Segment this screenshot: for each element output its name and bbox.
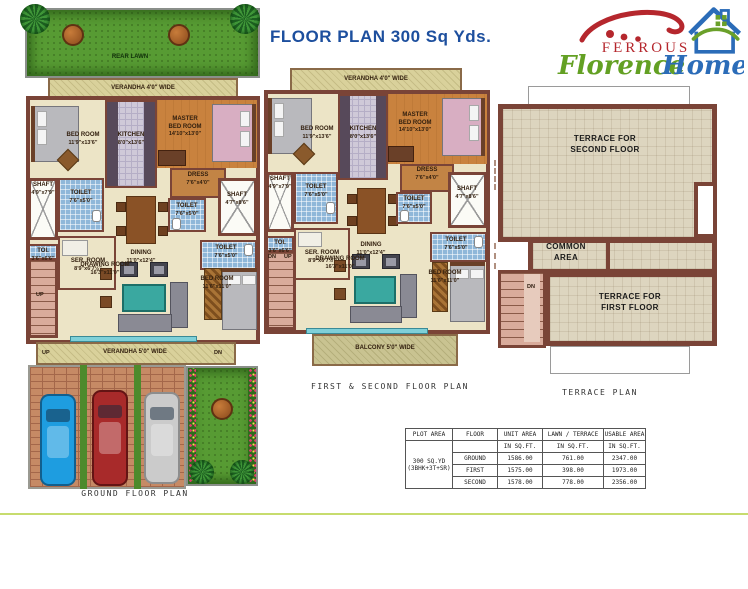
room-label-toilet-right-bottom: TOILET 7'6"x5'0": [200, 245, 252, 259]
unit-label: IN SQ.FT.: [543, 441, 604, 453]
side-table-icon: [334, 288, 346, 300]
room-label-shaft-left: SHAFT 4'9"x7'9": [263, 176, 297, 190]
terrace-dn-label: DN: [527, 284, 535, 290]
grass-strip: [80, 365, 87, 489]
room-label-master-bed-room: MASTER BED ROOM 14'10"x13'0": [162, 116, 208, 138]
car-silver-icon: [144, 392, 180, 484]
room-label-terrace-second: TERRACE FOR SECOND FLOOR: [540, 134, 670, 156]
terrace-second-floor: [498, 104, 717, 242]
chair-icon: [347, 216, 357, 226]
staircase: [28, 258, 58, 338]
unit-label: IN SQ.FT.: [604, 441, 646, 453]
sofa-icon: [118, 314, 172, 332]
terrace-right-notch: [694, 182, 717, 238]
room-label-dining: DINING 11'0"x12'4": [346, 242, 396, 256]
wardrobe-icon: [388, 146, 414, 162]
shaft-right: [218, 178, 257, 236]
chair-icon: [347, 194, 357, 204]
room-label-kitchen: KITCHEN 8'0"x13'6": [339, 126, 387, 140]
floor-plan-sheet: FLOOR PLAN 300 Sq Yds. FERROUS Florence …: [0, 0, 748, 589]
ground-floor-caption: GROUND FLOOR PLAN: [50, 489, 220, 498]
room-label-toi: TOI. 3'6"x6'6": [26, 248, 60, 262]
logo-swoosh-icon: [582, 12, 682, 40]
room-label-shaft-left: SHAFT 4'9"x7'9": [26, 182, 60, 196]
bed-icon: [212, 104, 256, 162]
bed-icon: [442, 98, 485, 156]
room-label-terrace-first: TERRACE FOR FIRST FLOOR: [575, 292, 685, 314]
car-blue-icon: [40, 394, 76, 486]
room-label-kitchen: KITCHEN 8'0"x13'6": [107, 132, 155, 146]
room-label-verandha-top: VERANDHA 4'0" WIDE: [48, 85, 238, 93]
unit-label: IN SQ.FT.: [498, 441, 543, 453]
room-label-drawing-room: DRAWING ROOM 16'3"x11'0": [305, 256, 375, 270]
coffee-table-icon: [354, 276, 396, 304]
first-second-floor-caption: FIRST & SECOND FLOOR PLAN: [280, 382, 500, 391]
room-label-bed-room: BED ROOM 11'9"x13'6": [294, 126, 340, 140]
stairs-up-label: UP: [284, 254, 292, 260]
room-label-drawing-room: DRAWING ROOM 16'3"x11'0": [70, 262, 140, 276]
garden-table-icon: [62, 24, 84, 46]
brand-logo: FERROUS Florence Homes: [552, 4, 744, 80]
dashed-wall: [494, 243, 496, 269]
stairs-up-label: UP: [36, 292, 44, 298]
toilet-fixture-icon: [172, 218, 181, 230]
chair-icon: [158, 202, 168, 212]
room-label-toilet-right-bottom: TOILET 7'6"x5'0": [430, 237, 482, 251]
table-subheader-row: 300 SQ.YD (3BHK+3T+SR) IN SQ.FT. IN SQ.F…: [406, 441, 646, 453]
col-header: UNIT AREA: [498, 429, 543, 441]
room-label-verandha-top: VERANDHA 4'0" WIDE: [290, 76, 462, 84]
veranda-dn-label: DN: [214, 350, 222, 356]
staircase: [266, 250, 296, 330]
table-header-row: PLOT AREA FLOOR UNIT AREA LAWN / TERRACE…: [406, 429, 646, 441]
col-header: USABLE AREA: [604, 429, 646, 441]
bottom-divider-line: [0, 513, 748, 515]
dining-table-icon: [357, 188, 386, 234]
dashed-wall: [494, 160, 496, 190]
coffee-table-icon: [122, 284, 166, 312]
toilet-fixture-icon: [92, 210, 101, 222]
common-area-wall: [606, 240, 610, 272]
col-header: LAWN / TERRACE: [543, 429, 604, 441]
stairs-dn-label: DN: [268, 254, 276, 260]
cot-icon: [298, 232, 322, 247]
rear-lawn: [25, 8, 260, 78]
sofa-icon: [400, 274, 417, 318]
room-label-toilet-left: TOILET 7'6"x5'0": [60, 190, 102, 204]
room-label-toilet-left: TOILET 7'6"x5'0": [296, 184, 336, 198]
house-icon: [690, 10, 740, 52]
window-strip-icon: [306, 328, 428, 334]
toilet-fixture-icon: [326, 202, 335, 214]
wardrobe-icon: [158, 150, 186, 166]
side-table-icon: [100, 296, 112, 308]
room-label-toi: TOI. 3'6"x6'6": [263, 240, 297, 254]
chair-icon: [116, 226, 126, 236]
garden-table-icon: [211, 398, 233, 420]
veranda-up-label: UP: [42, 350, 50, 356]
room-label-dress: DRESS 7'6"x4'0": [400, 167, 454, 181]
toilet-left: [58, 178, 104, 232]
sofa-icon: [350, 306, 402, 323]
garden-table-icon: [168, 24, 190, 46]
plot-area-cell: 300 SQ.YD (3BHK+3T+SR): [406, 441, 453, 489]
page-title: FLOOR PLAN 300 Sq Yds.: [270, 27, 491, 47]
logo-homes-text: Homes: [661, 51, 744, 80]
car-red-icon: [92, 390, 128, 486]
room-label-toilet-right-top: TOILET 7'6"x5'0": [396, 196, 432, 210]
room-label-balcony: BALCONY 5'0" WIDE: [312, 345, 458, 353]
palm-tree-icon: [20, 4, 50, 34]
room-label-verandha-bottom: VERANDHA 5'0" WIDE: [60, 349, 210, 357]
terrace-bottom-projection: [550, 346, 690, 374]
window-strip-icon: [70, 336, 197, 342]
col-header: FLOOR: [453, 429, 498, 441]
palm-tree-icon: [230, 460, 254, 484]
chair-icon: [158, 226, 168, 236]
room-label-bed-room: BED ROOM 11'9"x13'6": [60, 132, 106, 146]
room-label-bed-room-2: BED ROOM 11'6"x11'0": [196, 276, 238, 290]
grass-strip: [134, 365, 141, 489]
room-label-common-area: COMMON AREA: [530, 242, 602, 264]
logo-dot-icon: [606, 30, 614, 38]
room-label-shaft-right: SHAFT 4'7"x8'6": [446, 186, 488, 200]
chair-icon: [116, 202, 126, 212]
room-label-dress: DRESS 7'6"x4'0": [170, 172, 226, 186]
terrace-caption: TERRACE PLAN: [530, 388, 670, 397]
room-label-bed-room-2: BED ROOM 11'6"x11'0": [424, 270, 466, 284]
cot-icon: [62, 240, 88, 256]
palm-tree-icon: [230, 4, 260, 34]
room-label-rear-lawn: REAR LAWN: [95, 54, 165, 62]
toilet-fixture-icon: [400, 210, 409, 222]
area-table: PLOT AREA FLOOR UNIT AREA LAWN / TERRACE…: [405, 428, 646, 489]
room-label-shaft-right: SHAFT 4'7"x8'6": [216, 192, 258, 206]
col-header: PLOT AREA: [406, 429, 453, 441]
sofa-icon: [170, 282, 188, 328]
dining-table-icon: [126, 196, 156, 244]
room-label-master-bed-room: MASTER BED ROOM 14'10"x13'0": [392, 112, 438, 134]
room-label-toilet-right-top: TOILET 7'6"x5'0": [168, 203, 206, 217]
palm-tree-icon: [190, 460, 214, 484]
